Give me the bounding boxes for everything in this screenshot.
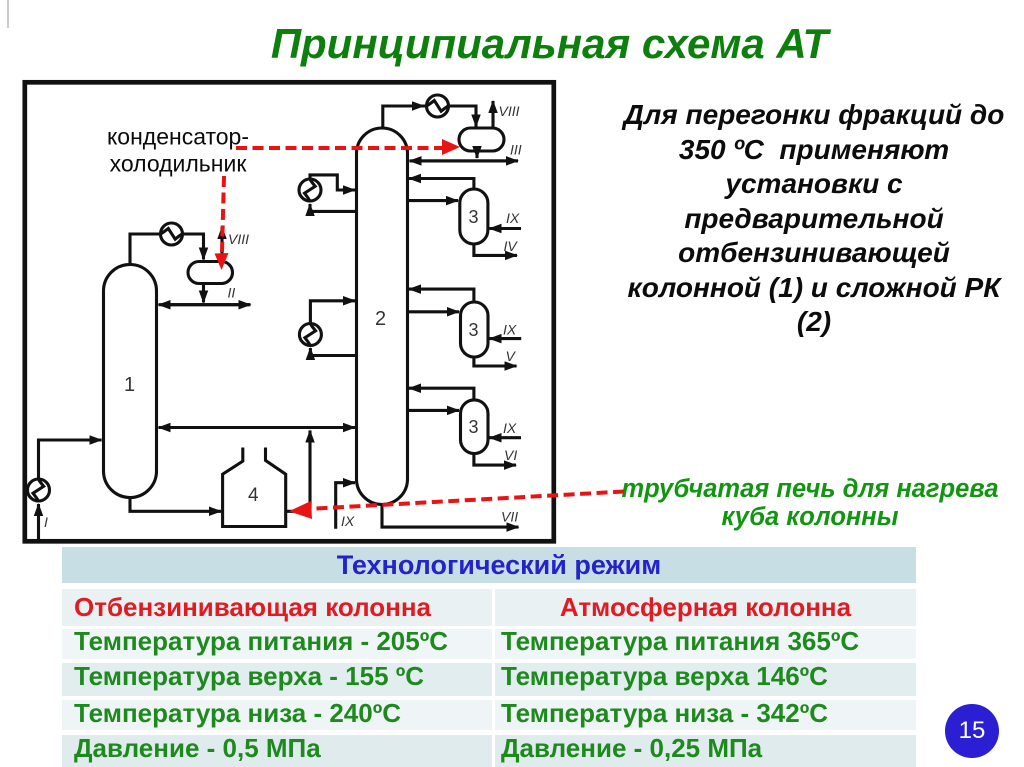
svg-text:V: V — [506, 348, 517, 364]
svg-text:VIII: VIII — [228, 231, 249, 247]
svg-text:IV: IV — [504, 238, 519, 254]
svg-text:3: 3 — [469, 207, 479, 227]
svg-text:IX: IX — [503, 322, 517, 338]
svg-text:VIII: VIII — [499, 103, 520, 119]
svg-text:II: II — [228, 285, 236, 301]
svg-text:3: 3 — [469, 417, 479, 437]
svg-text:III: III — [510, 142, 522, 158]
svg-text:VII: VII — [501, 509, 518, 525]
svg-text:1: 1 — [124, 374, 135, 396]
svg-text:2: 2 — [375, 308, 386, 330]
svg-text:холодильник: холодильник — [110, 151, 248, 177]
svg-text:IX: IX — [341, 513, 355, 529]
svg-text:I: I — [44, 514, 48, 530]
svg-text:IX: IX — [503, 420, 517, 436]
svg-text:3: 3 — [469, 320, 479, 340]
svg-text:конденсатор-: конденсатор- — [107, 124, 249, 150]
svg-text:4: 4 — [248, 485, 259, 506]
svg-text:IX: IX — [506, 210, 520, 226]
svg-text:VI: VI — [504, 447, 517, 463]
